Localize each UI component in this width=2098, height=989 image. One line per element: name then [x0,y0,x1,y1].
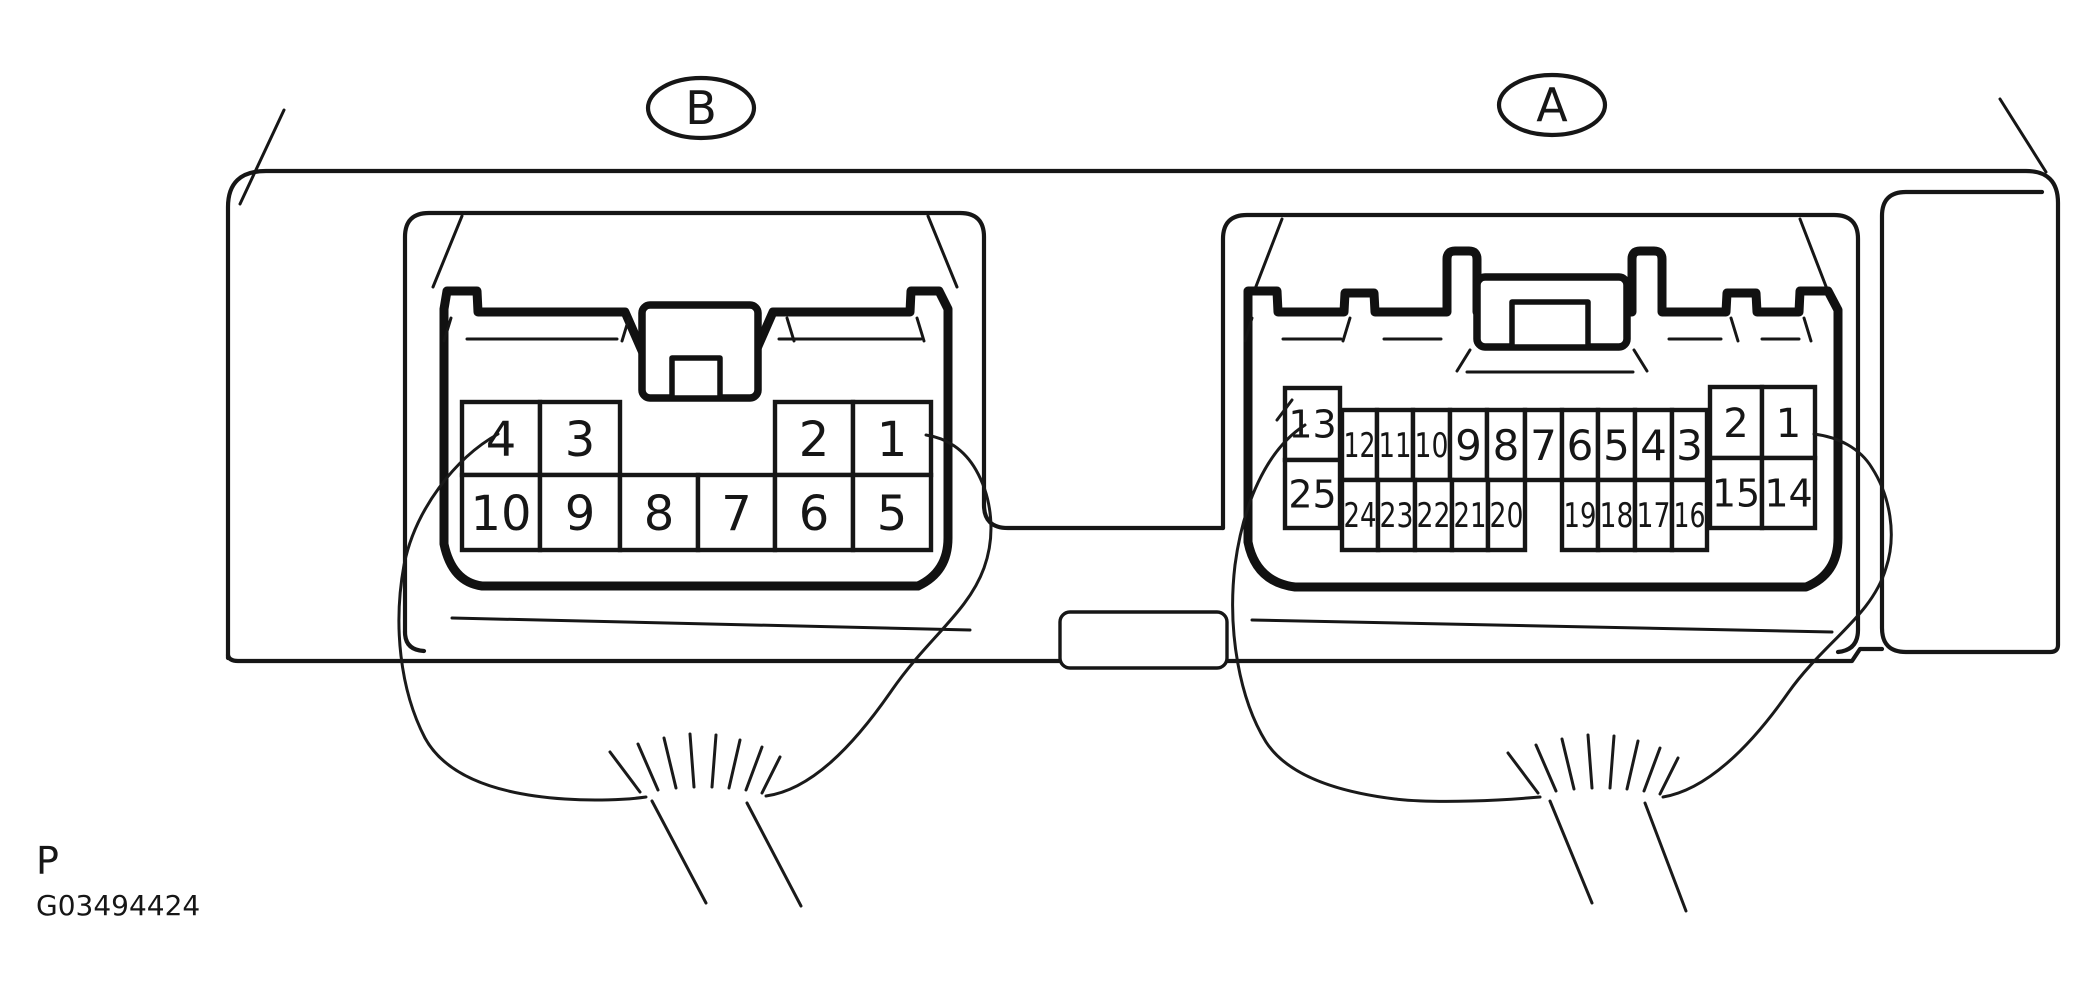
pin-number-A-14: 14 [1764,472,1812,516]
footer: P G03494424 [36,839,200,922]
pin-number-A-10: 10 [1415,426,1449,466]
ecu-top-left-perspective-line [240,110,284,204]
pin-number-A-8: 8 [1493,421,1520,470]
figure-id: G03494424 [36,889,200,922]
page-marker: P [36,839,59,883]
pin-number-A-15: 15 [1712,472,1760,516]
connector-a-pin-grid: 1325121110987654324232221201918171621151… [1285,387,1815,550]
pin-number-B-2: 2 [799,412,830,468]
ecu-bottom-edge [228,649,1882,661]
pin-number-B-10: 10 [470,486,531,542]
connector-a-callout: A [1499,75,1605,135]
connector-b-latch-notch [672,358,720,398]
pin-number-A-23: 23 [1380,496,1414,536]
pin-number-A-17: 17 [1637,496,1671,536]
pin-number-A-11: 11 [1379,426,1412,466]
pin-number-B-9: 9 [565,486,596,542]
pin-number-A-3: 3 [1676,421,1703,470]
pin-number-A-18: 18 [1600,496,1634,536]
pin-number-A-16: 16 [1674,496,1706,536]
connector-a-latch-notch [1512,302,1588,347]
pin-number-A-20: 20 [1490,496,1524,536]
pin-number-B-1: 1 [877,412,908,468]
connector-b-wire-strands [610,734,780,793]
pin-number-A-2: 2 [1723,401,1748,447]
pin-number-A-19: 19 [1564,496,1597,536]
connector-b-callout: B [648,78,754,138]
connector-a-wire-strands [1508,735,1678,794]
pin-number-A-9: 9 [1455,421,1482,470]
pin-number-A-21: 21 [1454,496,1487,536]
pin-number-B-8: 8 [644,486,675,542]
pin-number-A-7: 7 [1530,421,1557,470]
pin-number-B-3: 3 [565,412,596,468]
pin-number-A-1: 1 [1776,401,1801,447]
connector-b-label: B [685,81,717,135]
ecu-top-right-perspective-line [2000,99,2046,172]
pin-number-A-12: 12 [1344,426,1376,466]
connector-pinout-diagram: 43211098765 1325121110987654324232221201… [0,0,2098,989]
connector-a-wire-tail [1550,801,1686,911]
pin-number-B-7: 7 [721,486,752,542]
pin-number-A-25: 25 [1288,473,1336,517]
pin-number-A-22: 22 [1417,496,1451,536]
pin-number-A-24: 24 [1344,496,1377,536]
ecu-mount-tab [1060,612,1227,668]
pin-number-A-4: 4 [1640,421,1667,470]
diagram-page: 43211098765 1325121110987654324232221201… [0,0,2098,989]
connector-b-cavity-foot [405,632,424,651]
pin-number-B-6: 6 [799,486,830,542]
pin-number-A-5: 5 [1603,421,1630,470]
pin-number-B-5: 5 [877,486,908,542]
connector-b-wire-tail [652,801,801,906]
pin-number-A-6: 6 [1567,421,1594,470]
connector-b-pin-grid: 43211098765 [462,402,931,550]
pin-number-A-13: 13 [1288,403,1336,447]
connector-a-label: A [1536,78,1568,132]
